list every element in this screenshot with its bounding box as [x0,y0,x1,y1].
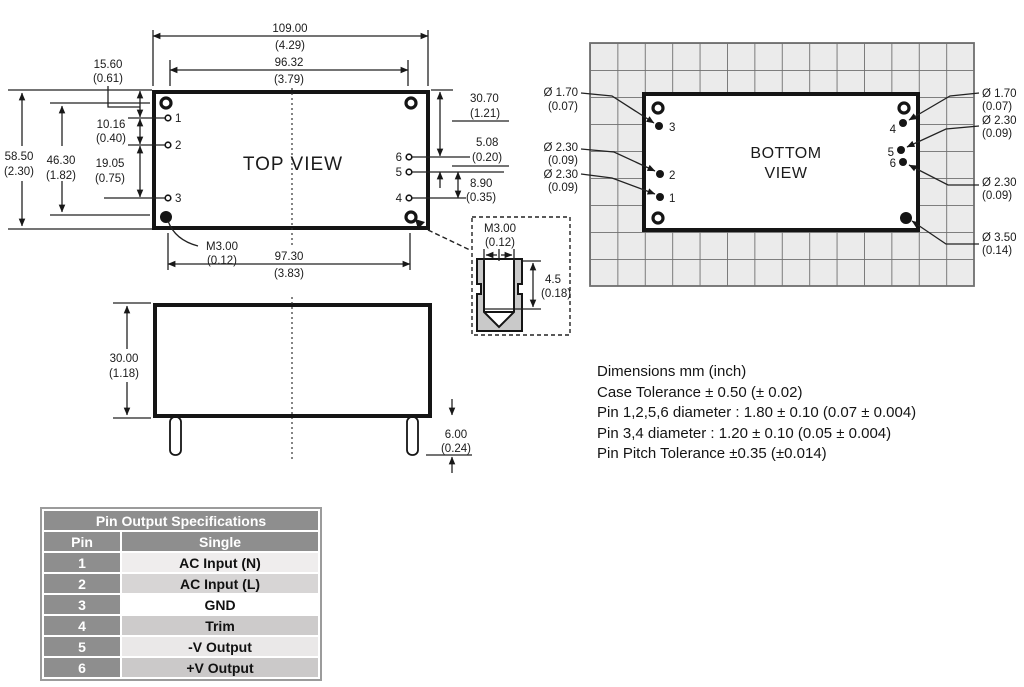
bv-dia-left2-mm: Ø 2.30 [543,142,578,154]
dim-9632-mm: 96.32 [275,57,304,69]
dim-3070-mm: 30.70 [470,93,499,105]
pin-function-cell: GND [122,595,318,614]
dim-4630-in: (1.82) [46,170,76,182]
dim-5850-in: (2.30) [4,166,34,178]
pin-3-top-view [165,195,171,201]
bv-dia-right1-mm: Ø 1.70 [982,88,1017,100]
dim-9632-in: (3.79) [274,74,304,86]
dim-4630-mm: 46.30 [47,155,76,167]
pin-3-label: 3 [175,193,181,205]
detail-view-drawing: M3.00 (0.12) 4.5 (0.18) [472,217,571,335]
bv-mounting-hole-top-right [899,103,909,113]
bv-dia-right3-in: (0.09) [982,190,1012,202]
dim-3000-mm: 30.00 [110,353,139,365]
table-header-row: Pin Single [44,532,318,551]
dim-890-in: (0.35) [466,192,496,204]
pin-number-cell: 1 [44,553,120,572]
bv-pin-3 [655,122,663,130]
dimension-notes: Dimensions mm (inch) Case Tolerance ± 0.… [597,362,916,465]
pin-6-top-view [406,154,412,160]
bottom-view-case-outline [644,94,918,230]
mounting-hole-top-left [161,98,171,108]
table-title: Pin Output Specifications [44,511,318,530]
m3-label-in: (0.12) [207,255,237,267]
pin-1-top-view [165,115,171,121]
dim-9730-in: (3.83) [274,268,304,280]
bv-pin-1 [656,193,664,201]
table-row: 6 +V Output [44,658,318,677]
table-row: 4 Trim [44,616,318,635]
detail-reference-dashed-line [428,230,470,250]
dim-508-mm: 5.08 [476,137,498,149]
bv-pin-2-label: 2 [669,170,675,182]
dim-508-in: (0.20) [472,152,502,164]
note-units: Dimensions mm (inch) [597,362,916,383]
bv-dia-left3-mm: Ø 2.30 [543,169,578,181]
bv-dia-right2-in: (0.09) [982,128,1012,140]
bv-pin-6 [899,158,907,166]
bv-pin-1-label: 1 [669,193,675,205]
pin-2-label: 2 [175,140,181,152]
pin-output-table: Pin Output Specifications Pin Single 1 A… [40,507,322,681]
side-view-drawing: 30.00 (1.18) 6.00 (0.24) [109,297,472,473]
pin-number-cell: 6 [44,658,120,677]
mechanical-drawing-page: TOP VIEW 1 2 3 6 5 4 [0,0,1024,687]
bv-dia-right4-mm: Ø 3.50 [982,232,1017,244]
dim-1016-mm: 10.16 [97,119,126,131]
bv-mounting-hole-bottom-right-filled [900,212,912,224]
pin-2-top-view [165,142,171,148]
bv-mounting-hole-bottom-left [653,213,663,223]
side-view-right-pin [407,417,418,455]
note-pin-pitch-tolerance: Pin Pitch Tolerance ±0.35 (±0.014) [597,444,916,465]
bv-dia-left2-in: (0.09) [548,155,578,167]
pin-function-cell: AC Input (N) [122,553,318,572]
bv-pin-4 [899,119,907,127]
table-row: 1 AC Input (N) [44,553,318,572]
detail-m3-in: (0.12) [485,237,515,249]
top-view-drawing: TOP VIEW 1 2 3 6 5 4 [4,23,509,280]
table-row: 2 AC Input (L) [44,574,318,593]
bv-dia-right2-mm: Ø 2.30 [982,115,1017,127]
dim-109-in: (4.29) [275,40,305,52]
pin-function-cell: AC Input (L) [122,574,318,593]
dim-1905-in: (0.75) [95,173,125,185]
pin-6-label: 6 [396,152,402,164]
dim-3070-in: (1.21) [470,108,500,120]
pin-4-top-view [406,195,412,201]
bv-dia-left1-mm: Ø 1.70 [543,87,578,99]
bv-dia-right1-in: (0.07) [982,101,1012,113]
bottom-view-drawing: BOTTOM VIEW 3 2 1 4 5 6 Ø 1.70 [543,43,1016,286]
bv-dia-left3-in: (0.09) [548,182,578,194]
pin-number-cell: 4 [44,616,120,635]
dim-9730-mm: 97.30 [275,251,304,263]
pin-function-cell: +V Output [122,658,318,677]
bv-pin-6-label: 6 [890,158,896,170]
bv-dia-right3-mm: Ø 2.30 [982,177,1017,189]
mounting-hole-top-right [406,98,416,108]
bv-pin-3-label: 3 [669,122,675,134]
note-pin34-diameter: Pin 3,4 diameter : 1.20 ± 0.10 (0.05 ± 0… [597,424,916,445]
note-case-tolerance: Case Tolerance ± 0.50 (± 0.02) [597,383,916,404]
table-row: 3 GND [44,595,318,614]
note-pin1256-diameter: Pin 1,2,5,6 diameter : 1.80 ± 0.10 (0.07… [597,403,916,424]
dim-1016-in: (0.40) [96,133,126,145]
bv-dia-right4-in: (0.14) [982,245,1012,257]
m3-label-mm: M3.00 [206,241,238,253]
dim-1905-mm: 19.05 [96,158,125,170]
bv-dia-left1-in: (0.07) [548,101,578,113]
side-view-left-pin [170,417,181,455]
pin-function-cell: Trim [122,616,318,635]
detail-m3-mm: M3.00 [484,223,516,235]
table-row: 5 -V Output [44,637,318,656]
pin-function-cell: -V Output [122,637,318,656]
dim-109-mm: 109.00 [272,23,307,35]
pin-5-label: 5 [396,167,402,179]
dim-600-mm: 6.00 [445,429,467,441]
pin-number-cell: 5 [44,637,120,656]
col-header-single: Single [122,532,318,551]
detail-depth-in: (0.18) [541,288,571,300]
dim-890-mm: 8.90 [470,178,492,190]
dim-5850-mm: 58.50 [5,151,34,163]
dim-1560-mm: 15.60 [94,59,123,71]
side-view-case-outline [155,305,430,416]
bv-pin-4-label: 4 [890,124,897,136]
pin-4-label: 4 [396,193,403,205]
dim-3000-in: (1.18) [109,368,139,380]
mounting-hole-bottom-right [406,212,416,222]
pin-1-label: 1 [175,113,181,125]
dim-1560-in: (0.61) [93,73,123,85]
pin-number-cell: 3 [44,595,120,614]
bv-pin-5 [897,146,905,154]
col-header-pin: Pin [44,532,120,551]
insert-bore [484,259,514,327]
bottom-view-title-line1: BOTTOM [750,145,821,162]
pin-5-top-view [406,169,412,175]
bv-pin-2 [656,170,664,178]
dim-600-in: (0.24) [441,443,471,455]
top-view-title: TOP VIEW [243,154,343,175]
pin-number-cell: 2 [44,574,120,593]
detail-depth-mm: 4.5 [545,274,561,286]
bv-mounting-hole-top-left [653,103,663,113]
bottom-view-title-line2: VIEW [765,165,808,182]
mounting-hole-bottom-left-filled [160,211,172,223]
